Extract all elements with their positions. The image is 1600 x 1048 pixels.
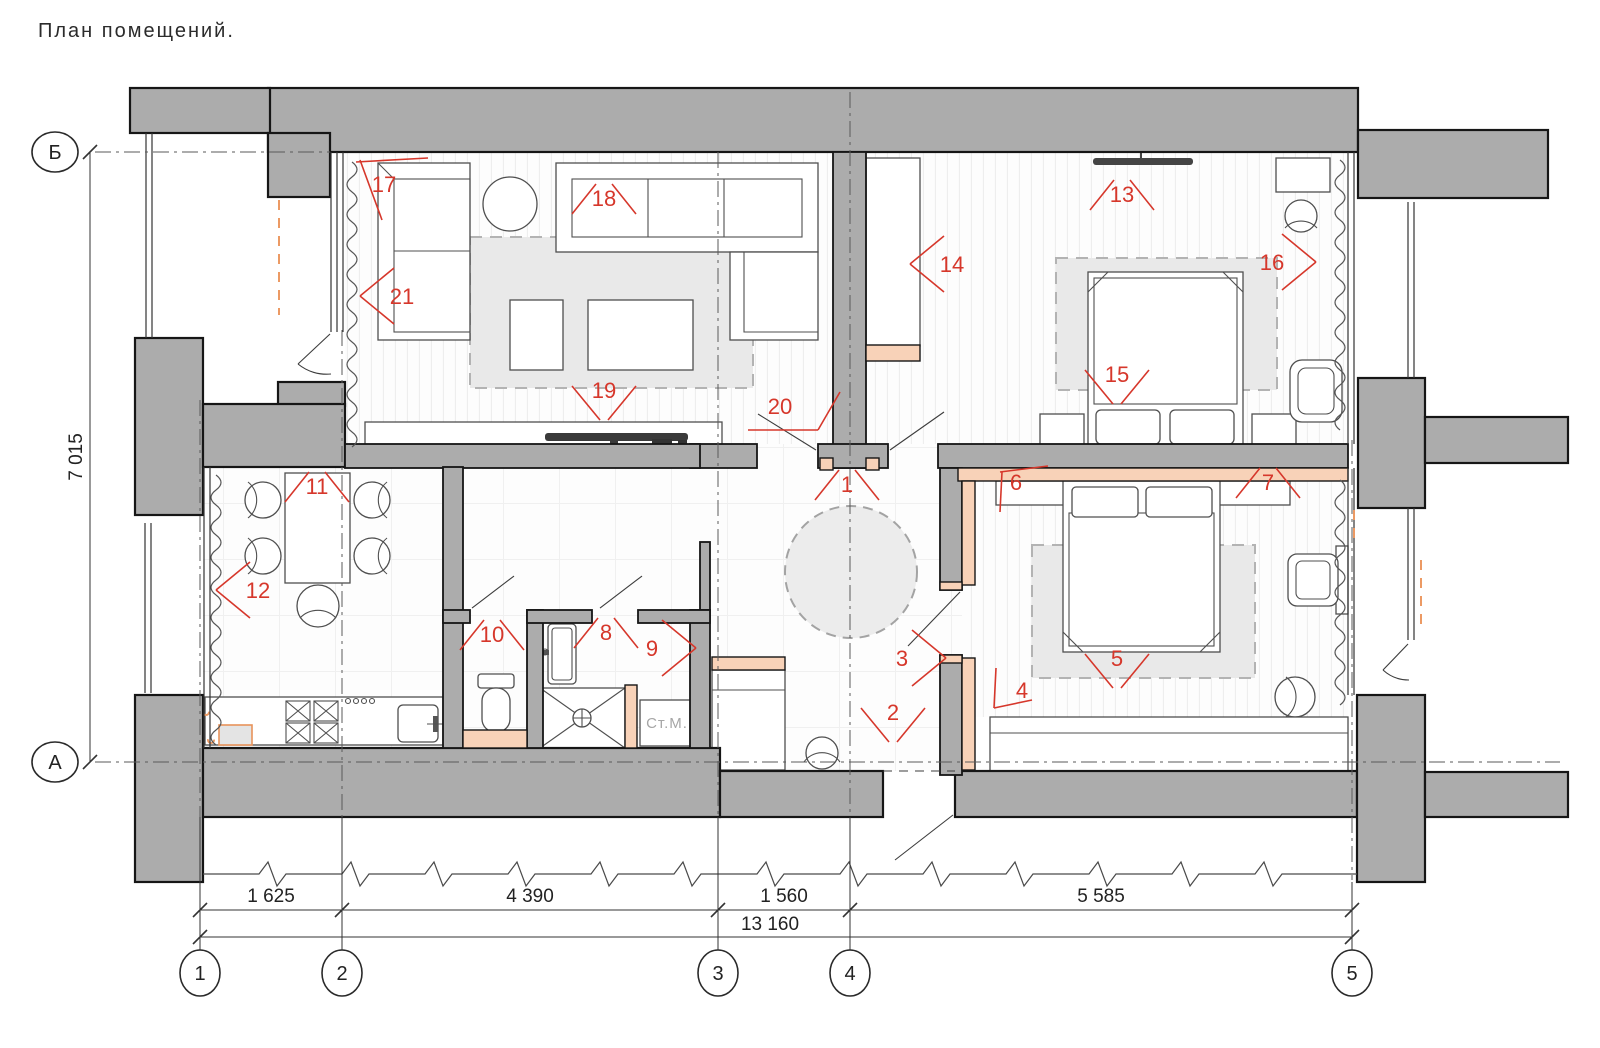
floor-plan-page: План помещений. [0,0,1600,1048]
left-balcony-glazing-lower [145,523,151,693]
living-kitchen-wall [345,444,700,468]
hall-cabinet [712,670,785,770]
kitchen-sink [398,705,444,742]
dim-seg-3: 1 560 [760,886,808,907]
bottom-wall-hall [720,771,883,817]
bath-right-wall [690,610,710,748]
corridor-hall-wall [700,542,710,610]
toilet [478,674,514,732]
bedroom2-bed [1063,481,1220,652]
room-marker-number: 2 [887,700,899,725]
living-balcony-door [298,334,331,374]
room-marker-number: 21 [390,284,414,309]
room-marker-number: 7 [1262,470,1274,495]
room-marker-number: 1 [841,472,853,497]
top-left-outer-wall [130,88,270,133]
right-mid-pier [1358,378,1425,508]
room-marker-number: 19 [592,378,616,403]
wc-bath-wall [527,610,543,748]
bath-partition [625,685,637,748]
bedroom1-armchair [1290,360,1342,422]
page-title: План помещений. [38,20,235,43]
bottom-wall-right [955,771,1357,817]
coffee-table-rect [588,300,693,370]
door-jamb [940,582,962,590]
axis-circle-A: А [32,742,78,782]
room-marker-number: 6 [1010,470,1022,495]
nightstand [1252,414,1296,448]
bath-top-wall-stub [527,610,592,623]
door-jamb [820,458,833,470]
room-marker-number: 14 [940,252,964,277]
top-right-neighbor-wall [1358,130,1548,198]
bedroom2-window [1348,468,1354,695]
neighbor-wall-arm-top [1425,417,1568,463]
svg-text:Б: Б [48,142,61,164]
kitchen-appliance [219,725,252,745]
kitchen-top-left-wall [203,404,345,467]
living-room-window [331,152,343,332]
dim-height: 7 015 [66,433,87,481]
bedroom2-balcony-door [1383,644,1409,680]
svg-text:А: А [48,752,62,774]
coffee-table-square [510,300,563,370]
bottom-right-column [1357,695,1425,882]
axis-circle-5: 5 [1332,950,1372,996]
room-marker-number: 4 [1016,678,1028,703]
axis-circle-B: Б [32,132,78,172]
bedroom2-left-shelf [962,658,975,770]
svg-text:3: 3 [712,963,723,985]
left-mid-wall [135,338,203,515]
left-balcony-glazing-upper [146,133,152,338]
bedroom2-left-shelf [962,481,975,585]
neighbor-wall-arm-bottom [1425,772,1568,817]
nightstand [1040,414,1084,448]
side-table-round [483,177,537,231]
svg-text:4: 4 [844,963,855,985]
bath-top-wall-stub [638,610,710,623]
room-marker-number: 15 [1105,362,1129,387]
dim-total: 13 160 [741,914,799,935]
right-balcony-glazing-lower [1408,508,1414,640]
bedroom2-left-wall-upper [940,468,962,590]
dim-seg-2: 4 390 [506,886,554,907]
room-marker-number: 16 [1260,250,1284,275]
door-jamb [866,458,879,470]
svg-text:1: 1 [194,963,205,985]
room-marker-number: 18 [592,186,616,211]
left-pier [268,133,330,197]
room-marker-number: 12 [246,578,270,603]
shower-tray [540,688,625,748]
bath-top-wall-stub [443,610,470,623]
break-line [203,862,1357,886]
bottom-left-corner-wall [135,695,203,882]
balcony-partition-step [278,382,345,406]
wc-floor-strip [463,730,527,748]
room-marker-number: 17 [372,172,396,197]
room-marker-number: 20 [768,394,792,419]
axis-circle-2: 2 [322,950,362,996]
axis-circle-4: 4 [830,950,870,996]
bedroom2-left-wall-lower [940,655,962,775]
kitchen-wc-wall [443,467,463,748]
svg-text:5: 5 [1346,963,1357,985]
kitchen-counter [205,697,444,745]
bedroom1-bed [1088,272,1243,450]
room-marker-number: 9 [646,636,658,661]
bedroom2-pouf [1275,677,1315,717]
floor-plan-drawing: Ст.М. [0,0,1600,1048]
entrance-door-leaf [895,815,953,860]
right-balcony-glazing-upper [1408,202,1414,378]
top-wall [268,88,1358,152]
bedroom2-bottom-wardrobe [990,717,1348,771]
room-marker-number: 11 [306,474,329,499]
dim-seg-1: 1 625 [247,886,295,907]
room-marker-number: 13 [1110,182,1134,207]
room-marker-number: 3 [896,646,908,671]
bedroom1-wardrobe-shelf [866,345,920,361]
bottom-wall-left [203,748,720,817]
svg-text:2: 2 [336,963,347,985]
bedroom1-wardrobe [866,158,920,346]
room-marker-number: 5 [1111,646,1123,671]
dim-seg-4: 5 585 [1077,886,1125,907]
axis-circle-3: 3 [698,950,738,996]
bedrooms-divider-wall [938,444,1348,468]
washing-machine-label: Ст.М. [646,715,688,732]
washing-machine: Ст.М. [640,700,695,746]
axis-circle-1: 1 [180,950,220,996]
hall-cabinet-top [712,657,785,670]
bedroom1-window [1348,152,1354,444]
hall-round-rug [785,506,917,638]
room-marker-number: 8 [600,620,612,645]
room-marker-number: 10 [480,622,504,647]
